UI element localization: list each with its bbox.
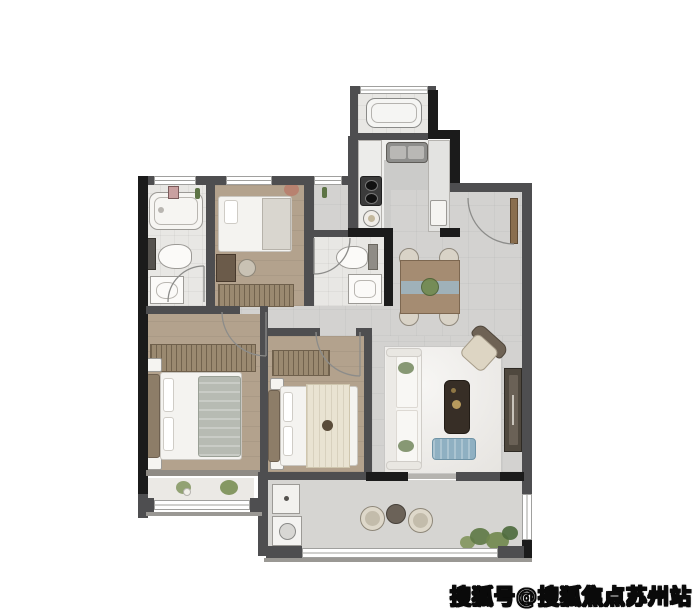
round-basin	[363, 210, 380, 227]
toilet	[336, 246, 368, 269]
master-wardrobe	[150, 344, 256, 372]
wash-basin	[150, 276, 184, 304]
window	[226, 176, 272, 185]
niche-floor	[314, 183, 348, 231]
table-plant	[421, 278, 439, 296]
master-bed-headboard	[146, 374, 160, 458]
wall-segment	[364, 328, 372, 472]
laundry-counter	[272, 484, 300, 514]
wall-segment	[266, 546, 302, 558]
outdoor-chair	[408, 508, 433, 533]
washing-machine	[272, 516, 302, 546]
balcony-outer-frame	[264, 558, 532, 562]
bed-blanket	[262, 198, 291, 250]
washer-ac-unit	[366, 98, 422, 128]
pillow	[224, 200, 238, 224]
blue-ottoman	[432, 438, 476, 460]
entry-door-leaf	[510, 198, 518, 244]
bedroom2-headboard	[268, 390, 280, 462]
tv-cabinet	[504, 368, 522, 452]
coffee-table-decor	[451, 388, 456, 393]
wall-segment	[348, 228, 386, 237]
stove	[360, 176, 382, 206]
decor-bottle	[322, 187, 327, 198]
balcony-window	[302, 548, 498, 558]
sofa-plant-pillow	[398, 440, 414, 452]
window	[154, 176, 196, 185]
bed-throw	[198, 376, 241, 457]
bedroom2-wardrobe	[272, 350, 330, 376]
wall-segment	[356, 328, 364, 336]
wash-basin	[348, 274, 382, 304]
toilet-tank	[368, 244, 378, 270]
outdoor-chair	[360, 506, 385, 531]
window	[314, 176, 342, 185]
pillow	[283, 392, 293, 422]
wall-segment	[366, 472, 408, 481]
bay-window	[154, 500, 250, 510]
desk	[216, 254, 236, 282]
desk-chair	[238, 259, 256, 277]
plant-pot	[183, 488, 191, 496]
wall-segment	[500, 472, 524, 481]
wall-segment	[146, 306, 240, 314]
wall-segment	[440, 228, 460, 237]
sofa-armrest	[386, 461, 422, 470]
toilet	[158, 244, 192, 269]
wall-segment	[206, 183, 215, 306]
kitchen-sink	[386, 142, 428, 163]
wall-segment	[350, 86, 358, 140]
wall-segment	[348, 136, 358, 236]
kitchen-cabinet	[430, 200, 447, 226]
sofa-backrest	[386, 350, 396, 468]
watermark-text: 搜狐号@搜狐焦点苏州站	[450, 581, 692, 611]
bay-outer-frame	[146, 512, 262, 516]
wall-segment	[358, 133, 428, 140]
plant	[220, 480, 238, 495]
wall-segment	[498, 546, 524, 558]
decor-bottle	[195, 188, 200, 199]
sofa-plant-pillow	[398, 362, 414, 374]
floor-plan: 搜狐号@搜狐焦点苏州站	[0, 0, 695, 615]
nightstand	[146, 358, 162, 372]
pillow	[163, 417, 174, 451]
wall-segment	[456, 472, 500, 481]
window	[522, 494, 532, 540]
sofa-cushion	[396, 410, 418, 462]
throw-button	[322, 420, 333, 431]
bedroom3-wardrobe	[218, 284, 294, 307]
outdoor-table	[386, 504, 406, 524]
coffee-table-decor	[452, 400, 461, 409]
wall-segment	[138, 176, 148, 494]
wall-segment	[450, 183, 532, 192]
wall-segment	[384, 228, 393, 306]
wall-segment	[268, 472, 366, 480]
pillow	[283, 426, 293, 456]
decor-frame	[168, 186, 179, 199]
pillow	[163, 378, 174, 412]
wall-segment	[260, 306, 268, 472]
bay-sill	[146, 470, 260, 476]
sliding-door-track	[408, 474, 456, 479]
wall-segment	[304, 183, 314, 306]
plant	[502, 526, 518, 540]
sofa-armrest	[386, 348, 422, 357]
window	[360, 86, 428, 94]
wall-segment	[268, 328, 320, 336]
